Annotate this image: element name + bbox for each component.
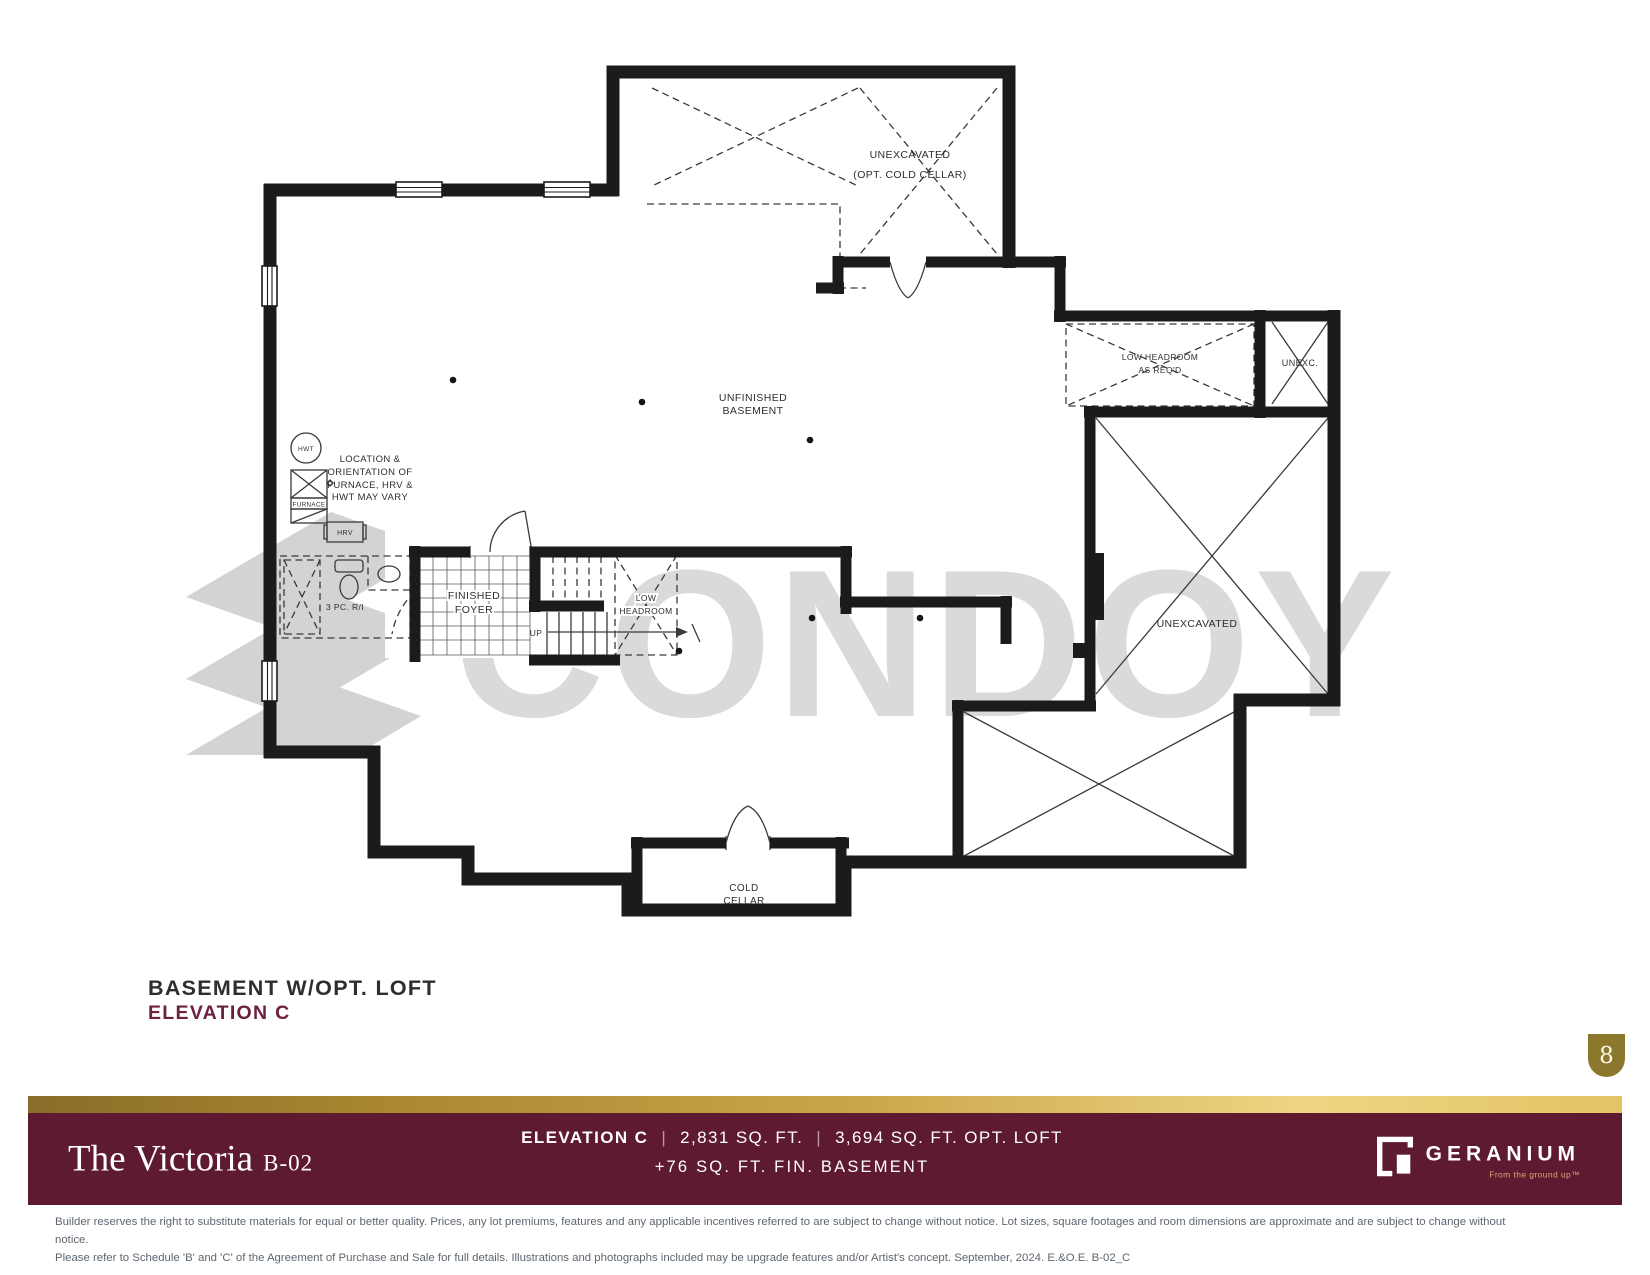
window [396,182,442,197]
svg-text:HWT MAY VARY: HWT MAY VARY [332,492,409,503]
disclaimer-line-2: Please refer to Schedule 'B' and 'C' of … [55,1249,1515,1267]
model-name-block: The VictoriaB-02 [68,1138,313,1181]
disclaimer: Builder reserves the right to substitute… [55,1213,1515,1267]
geranium-g-icon [1377,1137,1413,1182]
label-hrv: HRV [337,530,353,537]
svg-text:ORIENTATION OF: ORIENTATION OF [328,467,413,478]
label-low-headroom-reqd: LOW HEADROOM [1122,352,1199,362]
label-low-headroom: LOW [636,593,657,603]
page-number: 8 [1599,1043,1614,1069]
window [262,661,277,701]
footer-gold-bar [28,1096,1622,1113]
page-number-badge: 8 [1588,1034,1625,1077]
model-code: B-02 [263,1151,313,1176]
svg-text:BASEMENT: BASEMENT [723,405,784,417]
plan-title: BASEMENT W/OPT. LOFT [148,976,437,1001]
geranium-wordmark: GERANIUM [1426,1143,1580,1167]
label-unexc: UNEXC. [1282,358,1318,368]
window [544,182,590,197]
plan-elevation-title: ELEVATION C [148,1002,291,1025]
model-name: The Victoria [68,1139,253,1180]
label-up: UP [530,628,543,638]
page: CONDOY [0,0,1650,1275]
separator: | [661,1128,667,1147]
footer-elevation-label: ELEVATION C [521,1128,648,1147]
svg-text:AS REQ'D: AS REQ'D [1138,365,1181,375]
footer-stats-line1: ELEVATION C|2,831 SQ. FT.|3,694 SQ. FT. … [521,1128,1063,1148]
label-cold-cellar: COLD [729,883,758,894]
footer-basement-line: +76 SQ. FT. FIN. BASEMENT [521,1158,1063,1177]
footer-sqft: 2,831 SQ. FT. [680,1128,803,1147]
geranium-tagline: From the ground up™ [1426,1170,1580,1180]
window [262,266,277,306]
footer-stats: ELEVATION C|2,831 SQ. FT.|3,694 SQ. FT. … [521,1128,1063,1177]
mechanical-note: LOCATION & [340,454,401,465]
label-unexcavated-top: UNEXCAVATED [870,149,951,161]
svg-text:CELLAR: CELLAR [723,896,764,907]
label-3pc-ri: 3 PC. R/I [326,602,364,612]
geranium-logo: GERANIUM From the ground up™ [1377,1137,1580,1182]
svg-text:HEADROOM: HEADROOM [619,606,672,616]
footer: The VictoriaB-02 ELEVATION C|2,831 SQ. F… [28,1113,1622,1205]
svg-text:FOYER: FOYER [455,604,493,616]
label-opt-cold-cellar: (OPT. COLD CELLAR) [853,169,966,181]
svg-text:FURNACE, HRV &: FURNACE, HRV & [327,480,413,491]
label-furnace: FURNACE [293,502,326,509]
label-finished-foyer: FINISHED [448,590,500,602]
label-unfinished-basement: UNFINISHED [719,392,787,404]
floor-plan: CONDOY [0,0,1650,965]
label-hwt: HWT [298,446,314,453]
footer-sqft-loft: 3,694 SQ. FT. OPT. LOFT [835,1128,1063,1147]
separator: | [816,1128,822,1147]
disclaimer-line-1: Builder reserves the right to substitute… [55,1213,1515,1249]
label-unexcavated-right: UNEXCAVATED [1157,618,1238,630]
